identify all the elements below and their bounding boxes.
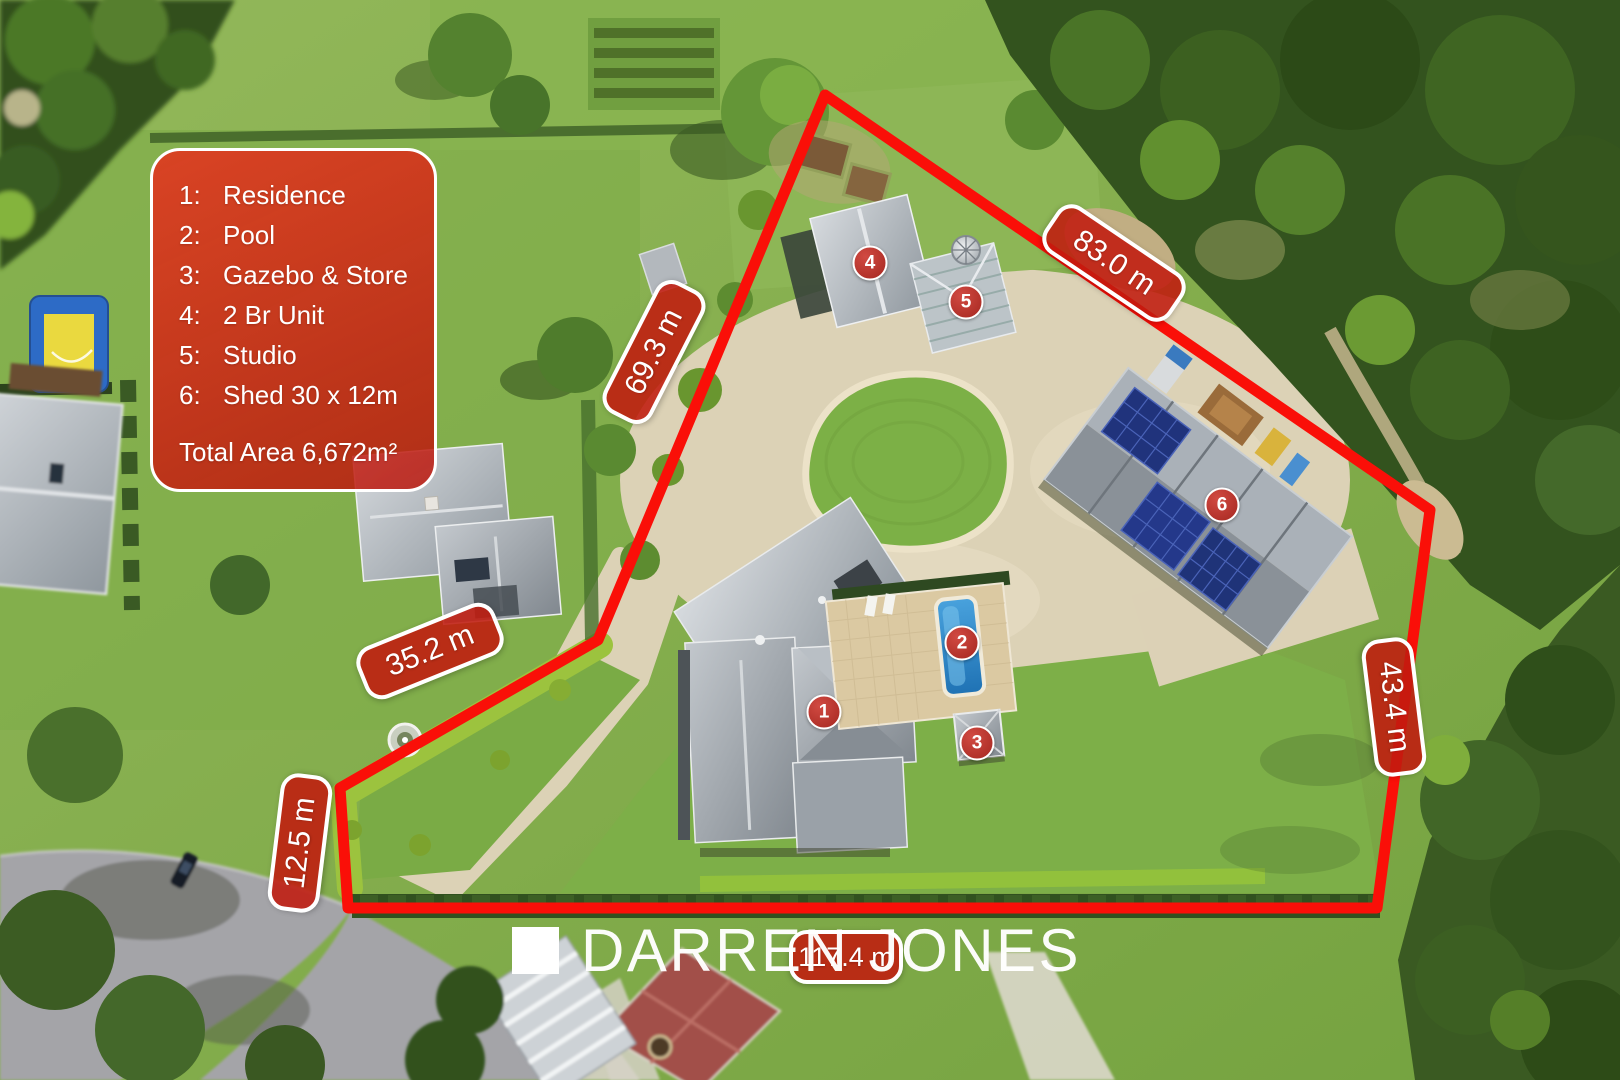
legend-total-area: Total Area 6,672m² (179, 434, 424, 470)
marker-6-shed: 6 (1205, 488, 1240, 523)
marker-2-pool: 2 (945, 626, 980, 661)
legend-item-gazebo: 3: Gazebo & Store (179, 255, 424, 295)
legend-item-pool: 2: Pool (179, 215, 424, 255)
marker-1-residence: 1 (807, 695, 842, 730)
legend-item-residence: 1: Residence (179, 175, 424, 215)
solar-panel (454, 557, 490, 582)
marker-4-unit: 4 (853, 246, 888, 281)
brand-watermark: DARREN JONES (512, 912, 1081, 988)
fountain (389, 724, 421, 756)
aerial-property-photo: 83.0 m 69.3 m 35.2 m 12.5 m 43.4 m 117.4… (0, 0, 1620, 1080)
brand-name: DARREN JONES (581, 916, 1081, 985)
legend-item-studio: 5: Studio (179, 335, 424, 375)
legend-item-shed: 6: Shed 30 x 12m (179, 375, 424, 415)
water-tank (952, 236, 980, 264)
legend-panel: 1: Residence 2: Pool 3: Gazebo & Store 4… (150, 148, 437, 492)
marker-3-gazebo: 3 (960, 726, 995, 761)
marker-5-studio: 5 (949, 285, 984, 320)
brand-square-icon (512, 927, 559, 974)
legend-item-unit: 4: 2 Br Unit (179, 295, 424, 335)
